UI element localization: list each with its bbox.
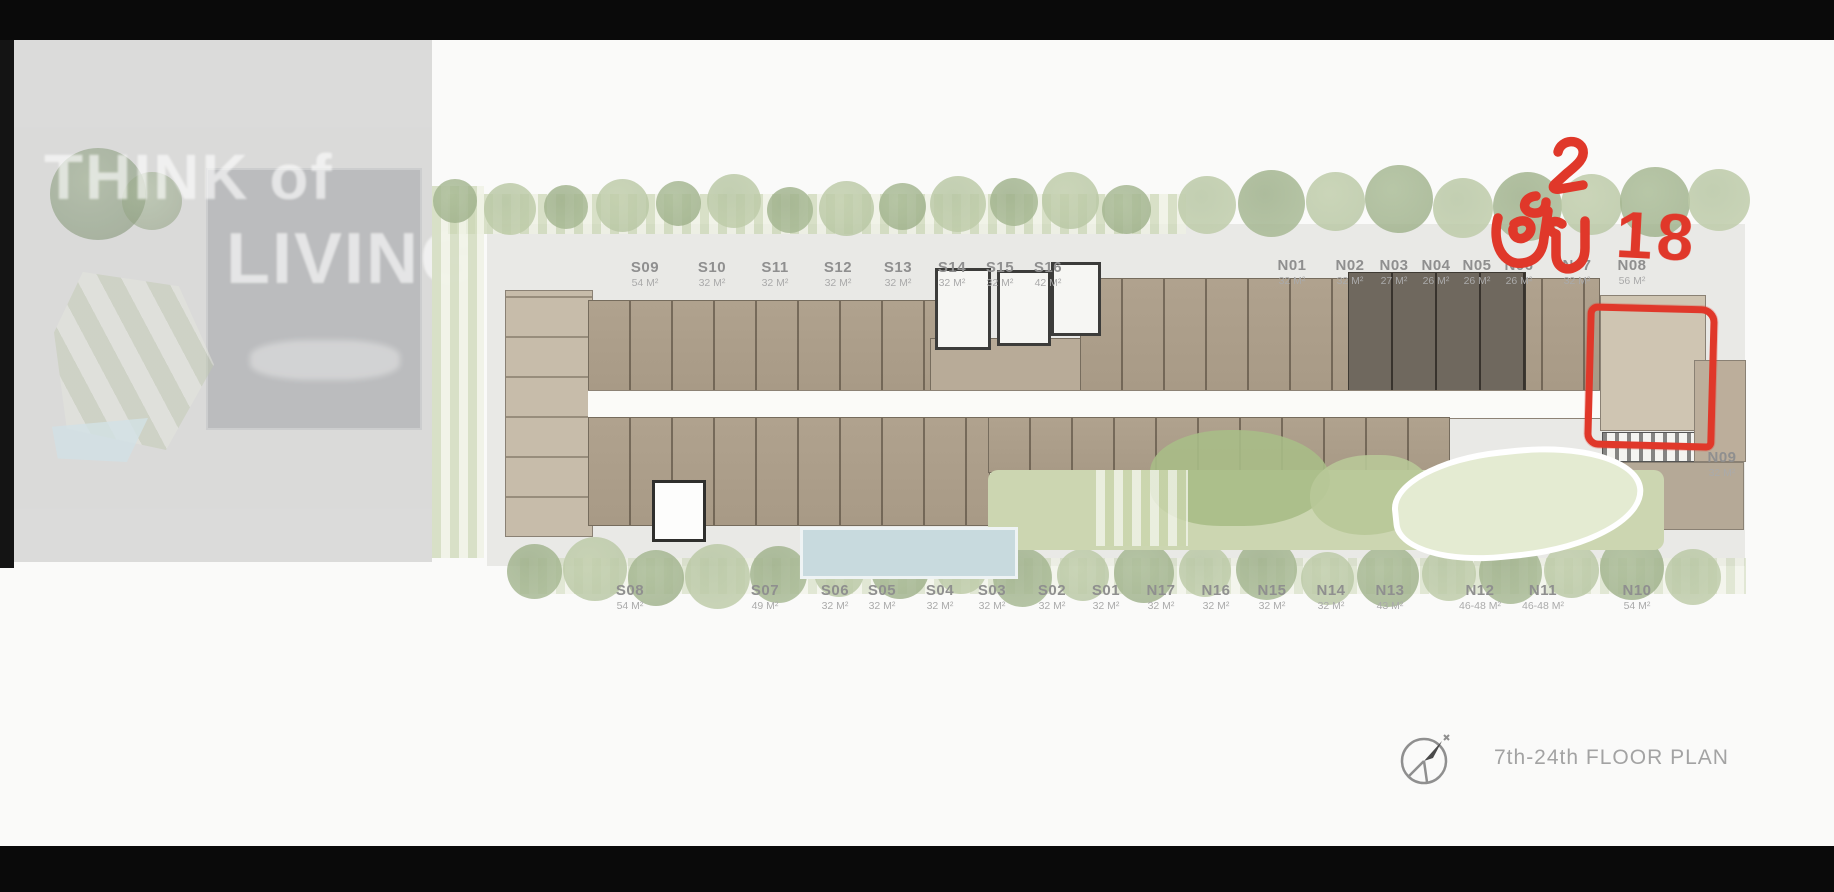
tree-icon — [707, 174, 761, 228]
unit-area: 32 M² — [1092, 601, 1120, 612]
unit-name: S12 — [824, 260, 852, 276]
unit-label-s08: S0854 M² — [616, 583, 644, 612]
unit-area: 32 M² — [761, 278, 788, 289]
tree-icon — [1433, 178, 1493, 238]
north-compass-icon — [1396, 730, 1456, 790]
letterbox-top — [0, 0, 1834, 40]
unit-label-s16: S1642 M² — [1034, 260, 1062, 289]
unit-name: S10 — [698, 260, 726, 276]
watermark-text-line1: THINK of — [44, 140, 334, 214]
tree-icon — [685, 544, 750, 609]
unit-area: 27 M² — [1379, 276, 1408, 287]
unit-label-n03: N0327 M² — [1379, 258, 1408, 287]
unit-name: S02 — [1038, 583, 1066, 599]
units-band-s09-s16 — [588, 300, 940, 392]
floor-number: 18 — [1614, 196, 1699, 276]
tree-icon — [544, 185, 588, 229]
unit-label-n15: N1532 M² — [1257, 583, 1286, 612]
unit-name: N17 — [1146, 583, 1175, 599]
elevator-block — [652, 480, 706, 542]
tree-icon — [1306, 172, 1365, 231]
unit-name: S08 — [616, 583, 644, 599]
unit-name: S05 — [868, 583, 896, 599]
letterbox-left — [0, 40, 14, 568]
unit-label-n09: N0932 M² — [1707, 450, 1736, 479]
unit-label-s05: S0532 M² — [868, 583, 896, 612]
unit-name: N02 — [1335, 258, 1364, 274]
tree-icon — [767, 187, 813, 233]
unit-label-n10: N1054 M² — [1622, 583, 1651, 612]
deck-stripes — [1096, 470, 1188, 546]
unit-name: N11 — [1522, 583, 1564, 599]
unit-label-n14: N1432 M² — [1316, 583, 1345, 612]
unit-label-s02: S0232 M² — [1038, 583, 1066, 612]
unit-label-s07: S0749 M² — [751, 583, 779, 612]
unit-area: 32 M² — [1707, 468, 1736, 479]
unit-name: N16 — [1201, 583, 1230, 599]
lap-pool — [800, 527, 1018, 579]
handwritten-floor-annotation: 18 — [1488, 120, 1818, 290]
unit-area: 32 M² — [868, 601, 896, 612]
letterbox-bottom — [0, 846, 1834, 892]
unit-area: 32 M² — [1201, 601, 1230, 612]
unit-name: S01 — [1092, 583, 1120, 599]
unit-label-n12: N1246-48 M² — [1459, 583, 1501, 612]
unit-area: 32 M² — [824, 278, 852, 289]
unit-label-s14: S1432 M² — [938, 260, 966, 289]
tree-icon — [990, 178, 1038, 226]
unit-area: 32 M² — [1038, 601, 1066, 612]
unit-name: N13 — [1375, 583, 1404, 599]
unit-name: N01 — [1277, 258, 1306, 274]
unit-label-s06: S0632 M² — [821, 583, 849, 612]
script-ghost — [250, 340, 400, 380]
unit-name: S03 — [978, 583, 1006, 599]
unit-label-s15: S1532 M² — [986, 260, 1014, 289]
unit-label-s09: S0954 M² — [631, 260, 659, 289]
unit-name: N04 — [1421, 258, 1450, 274]
building-west-endcap — [505, 290, 593, 537]
unit-label-n04: N0426 M² — [1421, 258, 1450, 287]
unit-area: 54 M² — [631, 278, 659, 289]
unit-area: 46-48 M² — [1459, 601, 1501, 612]
tree-icon — [1178, 176, 1236, 234]
tree-icon — [819, 181, 874, 236]
unit-area: 32 M² — [698, 278, 726, 289]
unit-label-s13: S1332 M² — [884, 260, 912, 289]
tree-icon — [656, 181, 701, 226]
unit-label-s03: S0332 M² — [978, 583, 1006, 612]
unit-area: 54 M² — [616, 601, 644, 612]
unit-label-n02: N0232 M² — [1335, 258, 1364, 287]
unit-area: 26 M² — [1421, 276, 1450, 287]
corridor — [588, 390, 1600, 419]
unit-area: 32 M² — [1335, 276, 1364, 287]
tree-icon — [507, 544, 562, 599]
tree-icon — [1665, 549, 1721, 605]
unit-name: S04 — [926, 583, 954, 599]
unit-label-s11: S1132 M² — [761, 260, 788, 289]
unit-name: N09 — [1707, 450, 1736, 466]
unit-name: S07 — [751, 583, 779, 599]
unit-label-s01: S0132 M² — [1092, 583, 1120, 612]
tree-icon — [433, 179, 477, 223]
tree-icon — [484, 183, 536, 235]
unit-area: 32 M² — [1277, 276, 1306, 287]
unit-name: N10 — [1622, 583, 1651, 599]
floor-plan-slide: THINK of LIVING S0954 M²S1032 M²S1132 M²… — [0, 0, 1834, 892]
unit-area: 32 M² — [986, 278, 1014, 289]
unit-label-s12: S1232 M² — [824, 260, 852, 289]
tree-icon — [1238, 170, 1305, 237]
unit-label-n16: N1632 M² — [1201, 583, 1230, 612]
unit-name: S14 — [938, 260, 966, 276]
tree-icon — [1102, 185, 1151, 234]
tree-icon — [930, 176, 986, 232]
unit-label-n11: N1146-48 M² — [1522, 583, 1564, 612]
unit-name: S16 — [1034, 260, 1062, 276]
tree-icon — [879, 183, 926, 230]
unit-area: 32 M² — [926, 601, 954, 612]
floor-plan-title: 7th-24th FLOOR PLAN — [1494, 746, 1729, 770]
hedge-column-left — [432, 186, 484, 558]
unit-label-s10: S1032 M² — [698, 260, 726, 289]
unit-area: 32 M² — [1257, 601, 1286, 612]
unit-name: S15 — [986, 260, 1014, 276]
unit-area: 42 M² — [1034, 278, 1062, 289]
unit-name: N03 — [1379, 258, 1408, 274]
unit-area: 54 M² — [1622, 601, 1651, 612]
unit-name: N12 — [1459, 583, 1501, 599]
unit-label-n01: N0132 M² — [1277, 258, 1306, 287]
unit-name: N14 — [1316, 583, 1345, 599]
highlight-box-n08 — [1584, 303, 1718, 450]
unit-label-s04: S0432 M² — [926, 583, 954, 612]
unit-area: 32 M² — [1146, 601, 1175, 612]
unit-area: 32 M² — [938, 278, 966, 289]
watermark-panel: THINK of LIVING — [14, 40, 432, 562]
unit-area: 46-48 M² — [1522, 601, 1564, 612]
unit-label-n17: N1732 M² — [1146, 583, 1175, 612]
tree-icon — [1365, 165, 1433, 233]
unit-area: 49 M² — [751, 601, 779, 612]
unit-area: 43 M² — [1375, 601, 1404, 612]
unit-area: 32 M² — [821, 601, 849, 612]
unit-name: S06 — [821, 583, 849, 599]
unit-label-n13: N1343 M² — [1375, 583, 1404, 612]
unit-name: S13 — [884, 260, 912, 276]
unit-name: N15 — [1257, 583, 1286, 599]
unit-area: 32 M² — [884, 278, 912, 289]
tree-icon — [596, 179, 649, 232]
unit-name: S09 — [631, 260, 659, 276]
unit-area: 32 M² — [1316, 601, 1345, 612]
unit-area: 32 M² — [978, 601, 1006, 612]
unit-name: S11 — [761, 260, 788, 276]
units-band-s08-s01 — [588, 417, 990, 526]
tree-icon — [1042, 172, 1099, 229]
